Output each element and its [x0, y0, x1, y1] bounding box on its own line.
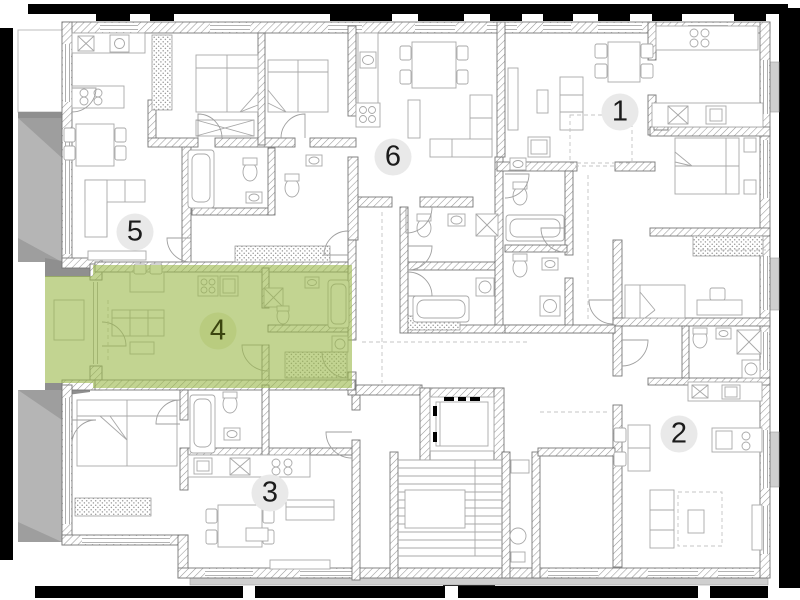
staircase: [398, 460, 502, 556]
floor-plan-svg: [0, 0, 800, 600]
apartment-badge-1[interactable]: 1: [602, 94, 639, 131]
apartment-badge-6[interactable]: 6: [375, 139, 412, 176]
floor-plan-viewer: 123456: [0, 0, 800, 600]
apartment-badge-3[interactable]: 3: [252, 475, 289, 512]
apartment-badge-2[interactable]: 2: [661, 416, 698, 453]
apartment-badge-5[interactable]: 5: [117, 214, 154, 251]
selected-apartment-region[interactable]: [45, 265, 352, 388]
apartment-badge-4[interactable]: 4: [200, 313, 237, 350]
